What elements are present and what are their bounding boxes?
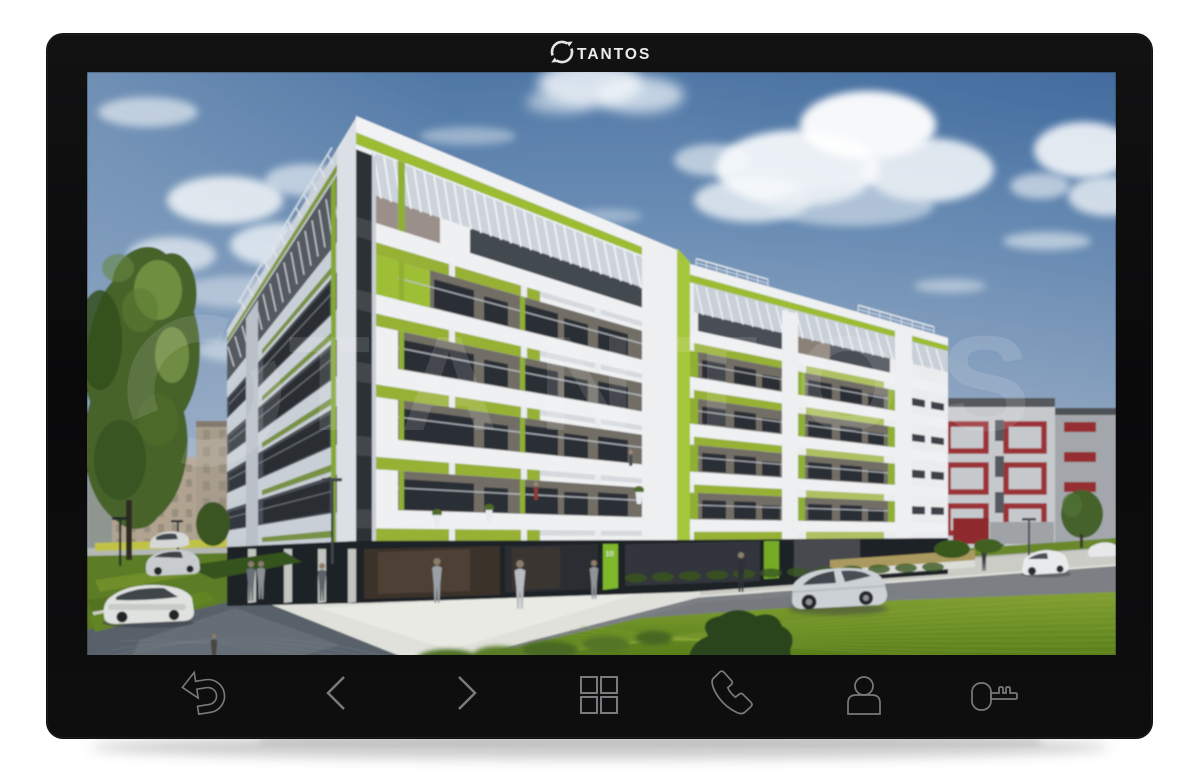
svg-text:TANTOS: TANTOS bbox=[288, 308, 1071, 459]
svg-text:TANTOS: TANTOS bbox=[577, 46, 651, 63]
svg-text:10: 10 bbox=[606, 549, 614, 558]
